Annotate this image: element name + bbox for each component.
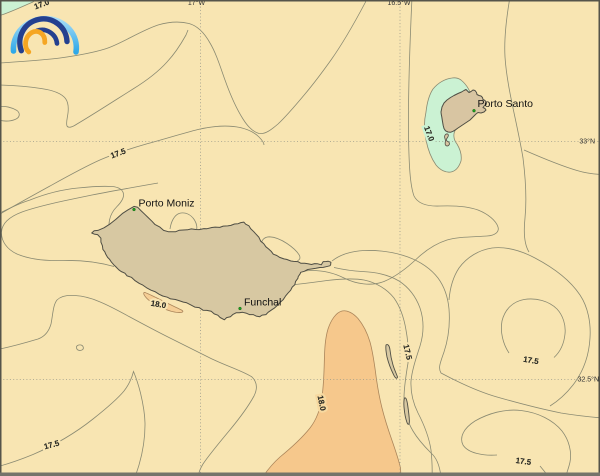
svg-text:Porto Moniz: Porto Moniz xyxy=(139,198,195,210)
svg-text:Porto Santo: Porto Santo xyxy=(478,98,534,110)
svg-text:32.5°N: 32.5°N xyxy=(578,376,599,384)
svg-text:33°N: 33°N xyxy=(579,138,595,146)
svg-text:Funchal: Funchal xyxy=(244,297,281,309)
